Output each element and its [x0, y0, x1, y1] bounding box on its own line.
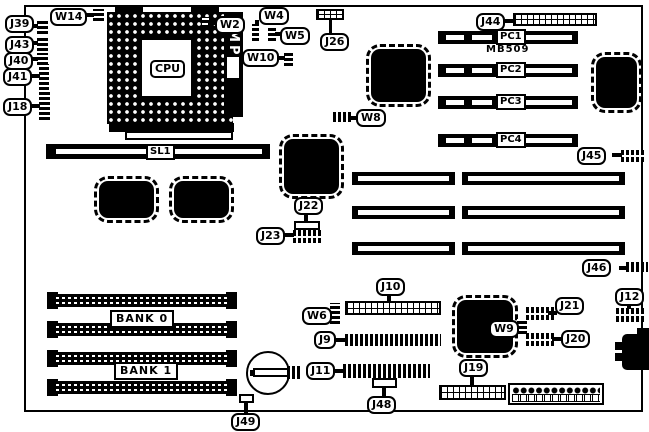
lead-j45 — [612, 153, 622, 157]
lead-w4 — [255, 20, 259, 26]
chip-qfp-top — [371, 49, 426, 102]
sl1-label: SL1 — [146, 144, 175, 160]
keyboard-connector — [622, 334, 649, 370]
label-w6: W6 — [302, 307, 332, 325]
simm-slot-4 — [56, 381, 228, 394]
pc3-stripe — [526, 100, 572, 105]
label-j22: J22 — [294, 197, 323, 215]
pc3-key1 — [446, 100, 464, 105]
simm-slot-1 — [56, 294, 228, 307]
label-bank1: BANK 1 — [114, 362, 178, 380]
header-j45 — [621, 150, 645, 162]
chip-qfp-small-left — [99, 181, 154, 218]
power-connector-sockets — [512, 394, 600, 402]
pc2-key2 — [472, 68, 492, 73]
connector-j43 — [37, 37, 48, 51]
label-j19: J19 — [459, 359, 488, 377]
pc4-label: PC4 — [496, 132, 526, 148]
pc4-stripe — [526, 138, 572, 143]
label-j45: J45 — [577, 147, 606, 165]
label-j46: J46 — [582, 259, 611, 277]
connector-j18 — [39, 90, 50, 120]
board-model: MB509 — [486, 44, 529, 56]
header-j12 — [616, 308, 646, 322]
label-w4: W4 — [259, 7, 289, 25]
chip-qfp-middle — [284, 139, 339, 194]
label-w8: W8 — [356, 109, 386, 127]
pci-slot-pc3: PC3 — [438, 96, 578, 109]
header-j44 — [513, 13, 597, 26]
pci-slot-pc2: PC2 — [438, 64, 578, 77]
lead-j26 — [329, 19, 332, 34]
pc2-key1 — [446, 68, 464, 73]
isa-2-right-stripe — [468, 210, 619, 215]
label-j41: J41 — [3, 68, 32, 86]
isa-slot-3-right — [462, 242, 625, 255]
isa-slot-2-left — [352, 206, 455, 219]
header-j20 — [526, 333, 554, 346]
label-w9: W9 — [489, 320, 519, 338]
chip-qfp-right — [596, 57, 637, 108]
isa-1-right-stripe — [468, 176, 619, 181]
pc1-label: PC1 — [496, 29, 526, 45]
label-j23: J23 — [256, 227, 285, 245]
label-j12: J12 — [615, 288, 644, 306]
lead-w10 — [278, 56, 285, 60]
label-j9: J9 — [314, 331, 336, 349]
jumper-w10 — [284, 53, 293, 66]
pc2-label: PC2 — [496, 62, 526, 78]
motherboard-diagram: J39 J43 J40 J41 J18 W14 CPU AMP W2 W10 W… — [0, 0, 649, 432]
lead-j46 — [619, 266, 627, 270]
pci-slot-pc1: PC1 — [438, 31, 578, 44]
header-j10 — [345, 301, 441, 315]
label-w10: W10 — [242, 49, 279, 67]
power-connector — [508, 383, 604, 405]
isa-3-left-stripe — [358, 246, 449, 251]
isa-3-right-stripe — [468, 246, 619, 251]
label-w2: W2 — [215, 16, 245, 34]
jumper-w14 — [93, 9, 104, 21]
label-j11: J11 — [306, 362, 335, 380]
pc2-stripe — [526, 68, 572, 73]
keyboard-connector-tab-1 — [615, 342, 624, 350]
pc4-key1 — [446, 138, 464, 143]
pc3-label: PC3 — [496, 94, 526, 110]
pc3-key2 — [472, 100, 492, 105]
label-j20: J20 — [561, 330, 590, 348]
cpu-bracket-frame — [125, 131, 233, 140]
label-cpu: CPU — [150, 60, 185, 78]
header-j46 — [626, 262, 648, 272]
header-j23 — [293, 230, 321, 243]
battery-bar — [253, 368, 290, 377]
slot-sl1: SL1 — [46, 144, 270, 159]
jumper-w8 — [333, 112, 353, 122]
pci-slot-pc4: PC4 — [438, 134, 578, 147]
label-j18: J18 — [3, 98, 32, 116]
chip-qfp-small-right — [174, 181, 229, 218]
header-j19 — [439, 385, 506, 400]
lead-j9 — [334, 338, 346, 342]
connector-j22 — [294, 221, 320, 230]
label-j44: J44 — [476, 13, 505, 31]
label-j39: J39 — [5, 15, 34, 33]
isa-slot-2-right — [462, 206, 625, 219]
amp-notch — [227, 57, 239, 78]
pc4-key2 — [472, 138, 492, 143]
isa-slot-3-left — [352, 242, 455, 255]
connector-j39 — [37, 20, 48, 34]
isa-slot-1-left — [352, 172, 455, 185]
jumper-w4 — [252, 24, 259, 41]
label-bank0: BANK 0 — [110, 310, 174, 328]
header-j11 — [343, 364, 430, 378]
keyboard-connector-tab-2 — [615, 353, 624, 361]
label-j48: J48 — [367, 396, 396, 414]
isa-2-left-stripe — [358, 210, 449, 215]
isa-1-left-stripe — [358, 176, 449, 181]
label-j49: J49 — [231, 413, 260, 431]
label-j26: J26 — [320, 33, 349, 51]
pc1-stripe — [526, 35, 572, 40]
label-j10: J10 — [376, 278, 405, 296]
pc1-key1 — [446, 35, 464, 40]
label-w5: W5 — [280, 27, 310, 45]
label-j21: J21 — [555, 297, 584, 315]
isa-slot-1-right — [462, 172, 625, 185]
header-j9 — [345, 334, 441, 346]
label-w14: W14 — [50, 8, 87, 26]
battery-clip — [287, 366, 302, 379]
pc1-key2 — [472, 35, 492, 40]
connector-j41 — [39, 64, 49, 90]
